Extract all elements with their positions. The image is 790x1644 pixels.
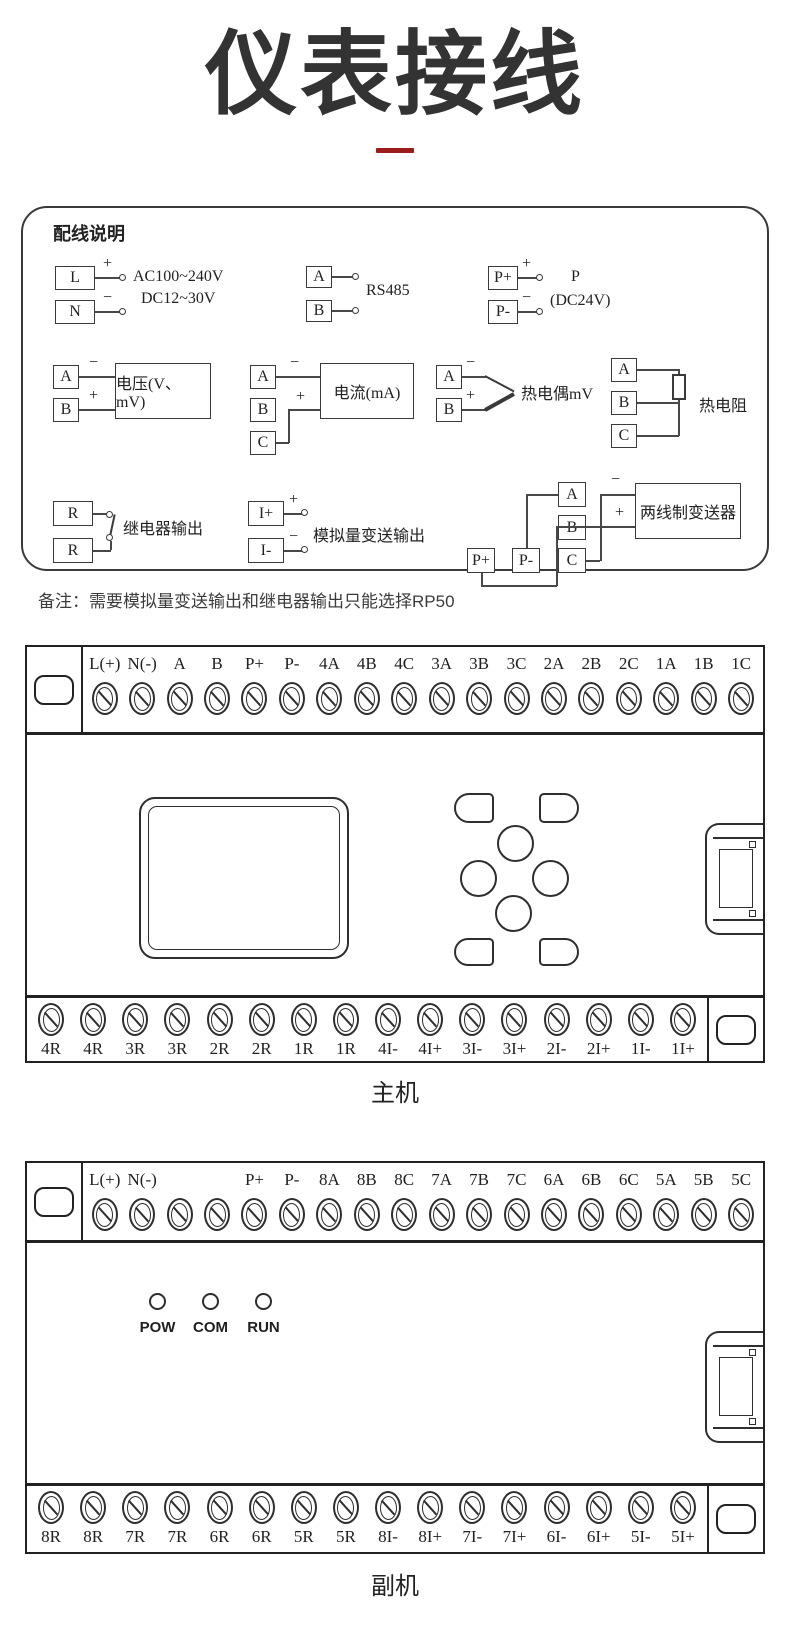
terminal-label: 7I+ [503, 1527, 527, 1552]
wire [276, 376, 320, 378]
terminal-screw [333, 1003, 359, 1036]
terminal-screw [122, 1491, 148, 1524]
terminal-label: 1I+ [671, 1039, 695, 1061]
wire [462, 409, 486, 411]
polarity-sign: − [611, 472, 620, 488]
terminal-box: B [250, 398, 276, 422]
terminal-screw [501, 1491, 527, 1524]
terminal-column: 1B [685, 647, 722, 732]
terminal-label: P+ [245, 654, 264, 680]
terminal-column: 1A [648, 647, 685, 732]
wire [481, 573, 483, 586]
terminal-screw [333, 1491, 359, 1524]
terminal-box: A [436, 365, 462, 389]
mounting-hole-cell [27, 1163, 83, 1240]
mounting-hole-cell [707, 1486, 763, 1552]
wire [462, 376, 486, 378]
terminal-column: 4A [311, 647, 348, 732]
terminal-box: A [53, 365, 79, 389]
terminal-label: 5A [656, 1170, 677, 1196]
terminal-label: 3R [125, 1039, 145, 1061]
sub-unit-board: L(+)N(-)P+P-8A8B8C7A7B7C6A6B6C5A5B5C POW… [25, 1161, 765, 1554]
wire [93, 550, 111, 552]
display-screen-inner [148, 806, 340, 950]
terminal-label: 8R [83, 1527, 103, 1552]
terminal-label: 5I- [631, 1527, 651, 1552]
led-indicator: COM [184, 1293, 237, 1336]
device-box: 两线制变送器 [635, 483, 741, 539]
polarity-sign: + [522, 256, 531, 272]
terminal-label: 8R [41, 1527, 61, 1552]
terminal-column: 2I- [536, 998, 578, 1061]
terminal-screw [80, 1003, 106, 1036]
wire [637, 435, 679, 437]
terminal-column: 5B [685, 1163, 722, 1240]
terminal-column: 3C [498, 647, 535, 732]
terminal-screw [249, 1491, 275, 1524]
terminal-box: P+ [488, 266, 518, 290]
terminal-label: P- [284, 654, 299, 680]
terminal-screw [417, 1003, 443, 1036]
group-label: P [571, 268, 580, 286]
terminal-label: 1C [731, 654, 751, 680]
function-button[interactable] [539, 938, 579, 966]
led-circle [202, 1293, 219, 1310]
group-label: (DC24V) [550, 292, 610, 310]
terminal-column: P- [273, 1163, 310, 1240]
terminal-column: 4C [386, 647, 423, 732]
terminal-column [198, 1163, 235, 1240]
terminal-label: 8B [357, 1170, 377, 1196]
terminal-screw [38, 1003, 64, 1036]
wire [79, 376, 115, 378]
terminal-screw [616, 1198, 642, 1231]
sub-top-terminal-strip: L(+)N(-)P+P-8A8B8C7A7B7C6A6B6C5A5B5C [27, 1163, 763, 1243]
terminal-label: 4B [357, 654, 377, 680]
terminal-label: 3I+ [503, 1039, 527, 1061]
terminal-screw [80, 1491, 106, 1524]
terminal-box: I- [248, 538, 284, 563]
wire [288, 409, 320, 411]
terminal-label: N(-) [128, 654, 157, 680]
terminal-box: A [558, 482, 586, 507]
wire [484, 392, 515, 411]
terminal-label: 3R [168, 1039, 188, 1061]
terminal-label: 8C [394, 1170, 414, 1196]
terminal-box: I+ [248, 501, 284, 526]
terminal-label: 7A [431, 1170, 452, 1196]
terminal-column: 5R [283, 1486, 325, 1552]
terminal-screw [167, 682, 193, 715]
terminal-label: 1I- [631, 1039, 651, 1061]
terminal-column: 2I+ [578, 998, 620, 1061]
up-button[interactable] [497, 825, 534, 862]
terminal-column: 6A [535, 1163, 572, 1240]
terminal-screw [653, 682, 679, 715]
terminal-screw [204, 682, 230, 715]
terminal-column: 4R [30, 998, 72, 1061]
sub-bottom-terminals: 8R8R7R7R6R6R5R5R8I-8I+7I-7I+6I-6I+5I-5I+ [27, 1486, 707, 1552]
led-label: POW [140, 1319, 176, 1336]
terminal-column: 5I+ [662, 1486, 704, 1552]
polarity-sign: − [466, 355, 475, 371]
polarity-sign: − [290, 355, 299, 371]
terminal-column: 7A [423, 1163, 460, 1240]
terminal-column: 6I+ [578, 1486, 620, 1552]
terminal-screw [241, 682, 267, 715]
function-button[interactable] [454, 938, 494, 966]
conn-line [713, 837, 763, 839]
conn-line [713, 1427, 763, 1429]
group-label: DC12~30V [141, 290, 215, 308]
terminal-label: 2I+ [587, 1039, 611, 1061]
terminal-column: 2A [535, 647, 572, 732]
terminal-label: L(+) [89, 1170, 120, 1196]
connection-node [536, 308, 543, 315]
terminal-label: 3A [431, 654, 452, 680]
connection-node [119, 274, 126, 281]
terminal-box: L [55, 266, 95, 290]
terminal-label: 5I+ [671, 1527, 695, 1552]
connector-slot [719, 849, 753, 908]
wire [586, 560, 600, 562]
wire [110, 541, 112, 550]
sub-unit-panel: POWCOMRUN [27, 1243, 763, 1483]
terminal-screw [691, 1198, 717, 1231]
terminal-column: 8I- [367, 1486, 409, 1552]
wire [79, 409, 115, 411]
conn-sq [749, 1349, 756, 1356]
terminal-box: B [436, 398, 462, 422]
terminal-column: 5C [722, 1163, 759, 1240]
terminal-label: 7R [125, 1527, 145, 1552]
terminal-column: 3R [114, 998, 156, 1061]
group-label: 继电器输出 [123, 515, 203, 539]
polarity-sign: + [89, 388, 98, 404]
terminal-label: 6I+ [587, 1527, 611, 1552]
terminal-screw [279, 682, 305, 715]
wire [526, 494, 558, 496]
terminal-screw [466, 682, 492, 715]
terminal-screw [207, 1003, 233, 1036]
connection-node [301, 509, 308, 516]
terminal-screw [544, 1491, 570, 1524]
terminal-column: 3A [423, 647, 460, 732]
terminal-label: 6I- [547, 1527, 567, 1552]
terminal-screw [417, 1491, 443, 1524]
terminal-column: N(-) [123, 1163, 160, 1240]
terminal-label: 5C [731, 1170, 751, 1196]
polarity-sign: + [615, 505, 624, 521]
terminal-screw [628, 1491, 654, 1524]
sub-unit-caption: 副机 [0, 1572, 790, 1602]
terminal-screw [291, 1491, 317, 1524]
connection-node [352, 273, 359, 280]
terminal-screw [670, 1003, 696, 1036]
terminal-screw [391, 682, 417, 715]
terminal-column: 2C [610, 647, 647, 732]
terminal-label: 2R [252, 1039, 272, 1061]
main-unit-caption: 主机 [0, 1079, 790, 1109]
terminal-screw [291, 1003, 317, 1036]
terminal-label: N(-) [128, 1170, 157, 1196]
terminal-screw [375, 1003, 401, 1036]
terminal-label: 2R [210, 1039, 230, 1061]
terminal-column: 7B [460, 1163, 497, 1240]
terminal-screw [38, 1491, 64, 1524]
terminal-column: P+ [236, 1163, 273, 1240]
terminal-column: 6C [610, 1163, 647, 1240]
terminal-screw [616, 682, 642, 715]
wire [556, 526, 635, 528]
conn-line [713, 1345, 763, 1347]
main-bottom-terminals: 4R4R3R3R2R2R1R1R4I-4I+3I-3I+2I-2I+1I-1I+ [27, 998, 707, 1061]
terminal-label: 5B [694, 1170, 714, 1196]
terminal-label: 2C [619, 654, 639, 680]
terminal-screw [691, 682, 717, 715]
terminal-box: B [611, 391, 637, 415]
terminal-label: 7R [168, 1527, 188, 1552]
terminal-box: P- [512, 548, 540, 573]
polarity-sign: − [522, 290, 531, 306]
terminal-screw [728, 682, 754, 715]
terminal-label: 1A [656, 654, 677, 680]
terminal-box: A [611, 358, 637, 382]
led-indicator: POW [131, 1293, 184, 1336]
terminal-column: 8C [386, 1163, 423, 1240]
right-button[interactable] [532, 860, 569, 897]
terminal-column: 3B [460, 647, 497, 732]
terminal-label: 8I+ [418, 1527, 442, 1552]
wiring-heading: 配线说明 [53, 220, 125, 246]
terminal-column: 4R [72, 998, 114, 1061]
conn-sq [749, 841, 756, 848]
terminal-box: P- [488, 300, 518, 324]
terminal-screw [466, 1198, 492, 1231]
terminal-label: 7C [507, 1170, 527, 1196]
terminal-label: 5R [336, 1527, 356, 1552]
terminal-column: 2R [199, 998, 241, 1061]
terminal-label: 4I+ [418, 1039, 442, 1061]
wire [637, 369, 679, 371]
terminal-box: R [53, 501, 93, 526]
terminal-label: 3I- [462, 1039, 482, 1061]
terminal-column: 1I- [620, 998, 662, 1061]
down-button[interactable] [495, 895, 532, 932]
terminal-label: 6C [619, 1170, 639, 1196]
terminal-column: 8B [348, 1163, 385, 1240]
main-top-terminals: L(+)N(-)ABP+P-4A4B4C3A3B3C2A2B2C1A1B1C [83, 647, 763, 732]
terminal-label: 7B [469, 1170, 489, 1196]
terminal-label: 8A [319, 1170, 340, 1196]
mounting-hole [716, 1504, 756, 1534]
polarity-sign: + [296, 389, 305, 405]
terminal-column: 3R [156, 998, 198, 1061]
polarity-sign: − [89, 355, 98, 371]
terminal-column: 8R [72, 1486, 114, 1552]
main-unit-board: L(+)N(-)ABP+P-4A4B4C3A3B3C2A2B2C1A1B1C 4… [25, 645, 765, 1063]
terminal-column: B [198, 647, 235, 732]
led-label: RUN [247, 1319, 280, 1336]
connection-node [536, 274, 543, 281]
terminal-box: C [250, 431, 276, 455]
terminal-box: C [611, 424, 637, 448]
terminal-screw [391, 1198, 417, 1231]
polarity-sign: + [289, 492, 298, 508]
group-label: 模拟量变送输出 [313, 522, 425, 546]
group-label: 热电阻 [699, 392, 747, 416]
terminal-label: 1B [694, 654, 714, 680]
terminal-screw [92, 1198, 118, 1231]
terminal-screw [354, 1198, 380, 1231]
terminal-screw [429, 682, 455, 715]
terminal-screw [541, 682, 567, 715]
terminal-label: 1R [336, 1039, 356, 1061]
terminal-column: 5R [325, 1486, 367, 1552]
terminal-screw [92, 682, 118, 715]
terminal-label: 3C [507, 654, 527, 680]
connector-slot [719, 1357, 753, 1416]
wire [481, 585, 557, 587]
terminal-column: N(-) [123, 647, 160, 732]
terminal-label: 4R [83, 1039, 103, 1061]
terminal-screw [544, 1003, 570, 1036]
terminal-screw [429, 1198, 455, 1231]
terminal-screw [129, 1198, 155, 1231]
terminal-screw [279, 1198, 305, 1231]
terminal-column: 6R [241, 1486, 283, 1552]
conn-sq [749, 910, 756, 917]
conn-line [713, 919, 763, 921]
terminal-screw [164, 1003, 190, 1036]
group-label: AC100~240V [133, 268, 223, 286]
terminal-label: 4A [319, 654, 340, 680]
polarity-sign: + [466, 388, 475, 404]
terminal-column [161, 1163, 198, 1240]
main-unit-panel [27, 735, 763, 995]
led-indicator: RUN [237, 1293, 290, 1336]
terminal-screw [207, 1491, 233, 1524]
device-box: 电压(V、mV) [115, 363, 211, 419]
main-bottom-terminal-strip: 4R4R3R3R2R2R1R1R4I-4I+3I-3I+2I-2I+1I-1I+ [27, 995, 763, 1061]
terminal-column: A [161, 647, 198, 732]
terminal-column: 6R [199, 1486, 241, 1552]
terminal-screw [249, 1003, 275, 1036]
terminal-label: 4I- [378, 1039, 398, 1061]
resistor-symbol [672, 374, 686, 400]
terminal-screw [375, 1491, 401, 1524]
terminal-box: B [306, 300, 332, 322]
terminal-screw [728, 1198, 754, 1231]
terminal-screw [241, 1198, 267, 1231]
terminal-box: B [53, 398, 79, 422]
mounting-hole-cell [707, 998, 763, 1061]
left-button[interactable] [460, 860, 497, 897]
sub-bottom-terminal-strip: 8R8R7R7R6R6R5R5R8I-8I+7I-7I+6I-6I+5I-5I+ [27, 1483, 763, 1552]
main-top-terminal-strip: L(+)N(-)ABP+P-4A4B4C3A3B3C2A2B2C1A1B1C [27, 647, 763, 735]
terminal-label: 3B [469, 654, 489, 680]
polarity-sign: + [103, 256, 112, 272]
terminal-column: 4I- [367, 998, 409, 1061]
terminal-column: 8R [30, 1486, 72, 1552]
connection-node [352, 307, 359, 314]
terminal-column: 7R [114, 1486, 156, 1552]
terminal-column: 2R [241, 998, 283, 1061]
terminal-screw [501, 1003, 527, 1036]
conn-sq [749, 1418, 756, 1425]
terminal-screw [164, 1491, 190, 1524]
led-circle [255, 1293, 272, 1310]
wire [637, 402, 679, 404]
side-connector [705, 1331, 763, 1443]
terminal-label: 4C [394, 654, 414, 680]
terminal-column: 6B [573, 1163, 610, 1240]
connection-node [301, 546, 308, 553]
terminal-column: 6I- [536, 1486, 578, 1552]
terminal-label: 6R [252, 1527, 272, 1552]
terminal-box: R [53, 538, 93, 563]
led-label: COM [193, 1319, 228, 1336]
terminal-screw [578, 682, 604, 715]
terminal-label: A [173, 654, 185, 680]
terminal-screw [316, 1198, 342, 1231]
terminal-box: P+ [467, 548, 495, 573]
terminal-box: N [55, 300, 95, 324]
terminal-column: 7R [156, 1486, 198, 1552]
terminal-label: P- [284, 1170, 299, 1196]
terminal-screw [504, 682, 530, 715]
mounting-hole-cell [27, 647, 83, 732]
mounting-hole [716, 1015, 756, 1045]
terminal-column: P- [273, 647, 310, 732]
terminal-box: A [306, 266, 332, 288]
terminal-column: 4I+ [409, 998, 451, 1061]
device-box: 电流(mA) [320, 363, 414, 419]
function-button[interactable] [454, 793, 494, 823]
terminal-column: 5I- [620, 1486, 662, 1552]
terminal-label: 7I- [462, 1527, 482, 1552]
terminal-label: L(+) [89, 654, 120, 680]
wire [600, 494, 635, 496]
terminal-column: 5A [648, 1163, 685, 1240]
terminal-box: A [250, 365, 276, 389]
terminal-column: P+ [236, 647, 273, 732]
terminal-column: 2B [573, 647, 610, 732]
terminal-screw [122, 1003, 148, 1036]
terminal-column: L(+) [86, 647, 123, 732]
terminal-column: 3I+ [493, 998, 535, 1061]
connection-node [106, 511, 113, 518]
terminal-label: 6R [210, 1527, 230, 1552]
connection-node [106, 534, 113, 541]
side-connector [705, 823, 763, 935]
terminal-column: 1C [722, 647, 759, 732]
polarity-sign: − [289, 529, 298, 545]
terminal-screw [586, 1491, 612, 1524]
terminal-screw [541, 1198, 567, 1231]
terminal-column: 1R [283, 998, 325, 1061]
terminal-screw [459, 1003, 485, 1036]
wiring-instructions-box: 配线说明 L N + − AC100~240V DC12~30V A B RS4… [21, 206, 769, 571]
terminal-column: 8I+ [409, 1486, 451, 1552]
terminal-label: 5R [294, 1527, 314, 1552]
wire [485, 375, 515, 392]
terminal-screw [578, 1198, 604, 1231]
page-title: 仪表接线 [0, 25, 790, 125]
terminal-label: 6B [581, 1170, 601, 1196]
terminal-label: 2B [581, 654, 601, 680]
function-button[interactable] [539, 793, 579, 823]
